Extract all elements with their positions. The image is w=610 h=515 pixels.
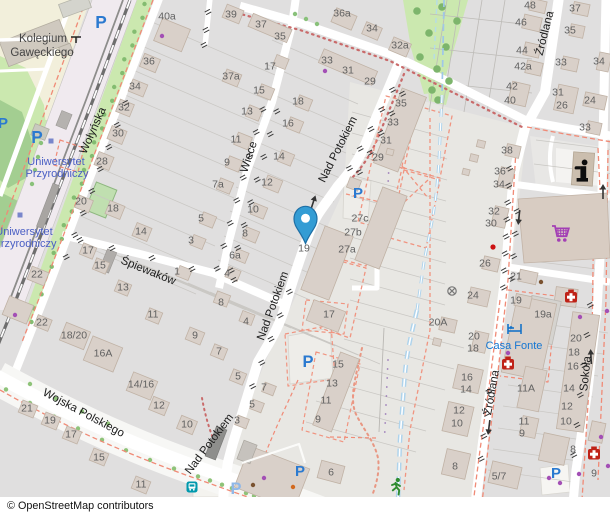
svg-text:35: 35 [274,31,286,43]
svg-text:12: 12 [453,405,465,417]
svg-text:10: 10 [560,416,572,428]
svg-text:4: 4 [243,316,249,328]
svg-text:10: 10 [451,418,463,430]
svg-text:33: 33 [555,57,567,69]
svg-text:31: 31 [342,65,354,77]
svg-text:9: 9 [315,414,321,426]
svg-text:36: 36 [494,166,506,178]
svg-text:3: 3 [188,235,194,247]
svg-text:32a: 32a [391,40,409,52]
svg-text:12: 12 [153,400,165,412]
svg-text:5: 5 [249,399,255,411]
svg-text:7: 7 [216,346,222,358]
svg-text:22: 22 [31,269,43,281]
svg-text:14: 14 [135,226,147,238]
svg-text:34: 34 [593,56,605,68]
svg-text:P: P [31,127,43,147]
svg-text:24: 24 [467,290,479,302]
svg-text:5/7: 5/7 [492,471,507,483]
svg-text:27a: 27a [338,244,356,256]
svg-text:21: 21 [21,403,33,415]
svg-text:34: 34 [493,179,505,191]
svg-text:6a: 6a [229,250,241,262]
svg-text:42a: 42a [514,61,532,73]
svg-text:20: 20 [468,331,480,343]
svg-text:8: 8 [452,461,458,473]
svg-text:12: 12 [261,177,273,189]
svg-text:14: 14 [460,384,472,396]
svg-text:15: 15 [94,260,106,272]
svg-text:21: 21 [510,271,522,283]
svg-text:33: 33 [579,122,591,134]
svg-text:32: 32 [118,102,130,114]
svg-text:3: 3 [234,415,240,427]
svg-text:18: 18 [292,96,304,108]
svg-text:22: 22 [36,317,48,329]
svg-text:29: 29 [364,76,376,88]
svg-text:11: 11 [321,395,332,407]
svg-text:39: 39 [225,9,237,21]
svg-text:19: 19 [44,415,56,427]
svg-text:17: 17 [264,61,276,73]
svg-text:4: 4 [224,268,230,280]
svg-text:31: 31 [552,87,564,99]
svg-text:18: 18 [568,347,580,359]
svg-text:19: 19 [298,243,310,255]
svg-text:10: 10 [247,204,259,216]
svg-text:13: 13 [117,282,129,294]
svg-text:7a: 7a [212,179,224,191]
svg-text:Przyrodniczy: Przyrodniczy [26,168,89,180]
svg-text:5: 5 [198,213,204,225]
svg-text:18: 18 [467,343,479,355]
svg-text:15: 15 [332,359,344,371]
svg-text:17: 17 [323,309,335,321]
svg-text:13: 13 [241,106,253,118]
svg-text:P: P [551,465,561,482]
svg-text:30: 30 [112,128,124,140]
svg-text:28: 28 [96,156,108,168]
svg-text:36a: 36a [333,8,351,20]
svg-text:13: 13 [326,378,338,390]
svg-text:48: 48 [524,0,536,12]
svg-text:17: 17 [82,245,94,257]
svg-text:42: 42 [506,81,518,93]
svg-text:17: 17 [65,429,77,441]
svg-text:40a: 40a [158,11,176,23]
svg-text:30: 30 [485,218,497,230]
svg-text:11A: 11A [517,383,535,395]
svg-text:1: 1 [174,266,180,278]
svg-text:46: 46 [515,17,527,29]
svg-text:6: 6 [328,467,334,479]
svg-text:15: 15 [253,85,265,97]
svg-text:7: 7 [261,382,267,394]
svg-text:8: 8 [570,444,576,456]
svg-text:16: 16 [567,361,579,373]
svg-text:14: 14 [273,151,285,163]
svg-text:36: 36 [143,56,155,68]
svg-text:15: 15 [93,452,105,464]
svg-text:Uniwersytet: Uniwersytet [0,226,53,238]
svg-text:9: 9 [591,468,597,480]
svg-text:40: 40 [504,95,516,107]
svg-text:Uniwersytet: Uniwersytet [27,156,84,168]
svg-text:5: 5 [235,371,241,383]
svg-text:37: 37 [569,3,581,15]
svg-text:9: 9 [519,428,525,440]
svg-text:8: 8 [218,297,224,309]
svg-text:11: 11 [148,309,159,321]
svg-text:11: 11 [136,479,147,491]
svg-text:11: 11 [519,416,530,428]
svg-text:20: 20 [75,196,87,208]
svg-text:33: 33 [387,117,399,129]
svg-text:29: 29 [372,152,384,164]
svg-text:34: 34 [129,81,141,93]
svg-text:19: 19 [510,295,522,307]
svg-text:Przyrodniczy: Przyrodniczy [0,238,57,250]
svg-text:33: 33 [321,55,333,67]
svg-text:16: 16 [282,118,294,130]
svg-text:Casa Fonte: Casa Fonte [486,340,543,352]
svg-text:16: 16 [461,372,473,384]
svg-text:11: 11 [231,134,242,146]
svg-text:34: 34 [366,23,378,35]
svg-text:© OpenStreetMap contributors: © OpenStreetMap contributors [7,500,154,512]
svg-text:P: P [0,115,8,132]
svg-text:14: 14 [563,383,575,395]
svg-text:P: P [353,185,363,202]
svg-text:20A: 20A [429,317,448,329]
svg-text:35: 35 [395,98,407,110]
svg-text:10: 10 [181,419,193,431]
svg-text:37a: 37a [222,71,240,83]
svg-text:14/16: 14/16 [128,379,154,391]
svg-text:9: 9 [224,157,230,169]
svg-text:Kolegium: Kolegium [19,33,67,45]
svg-text:P: P [302,353,313,371]
svg-text:16A: 16A [94,348,113,360]
svg-text:31: 31 [380,135,392,147]
svg-text:8: 8 [242,228,248,240]
svg-text:18: 18 [107,203,119,215]
svg-text:44: 44 [516,45,528,57]
svg-text:32: 32 [488,206,500,218]
svg-text:26: 26 [479,258,491,270]
svg-text:24: 24 [584,95,596,107]
svg-text:P: P [230,480,241,498]
svg-text:26: 26 [556,100,568,112]
svg-text:38: 38 [501,145,513,157]
svg-text:18/20: 18/20 [61,330,87,342]
svg-text:20: 20 [570,333,582,345]
svg-text:Gawęckiego: Gawęckiego [10,47,73,59]
svg-text:19a: 19a [534,309,552,321]
svg-text:27c: 27c [352,213,369,225]
svg-text:35: 35 [564,25,576,37]
svg-text:9: 9 [192,330,198,342]
svg-text:12: 12 [561,401,573,413]
svg-text:27b: 27b [344,227,362,239]
svg-text:37: 37 [255,19,267,31]
svg-text:P: P [295,463,305,480]
svg-text:P: P [95,12,107,32]
